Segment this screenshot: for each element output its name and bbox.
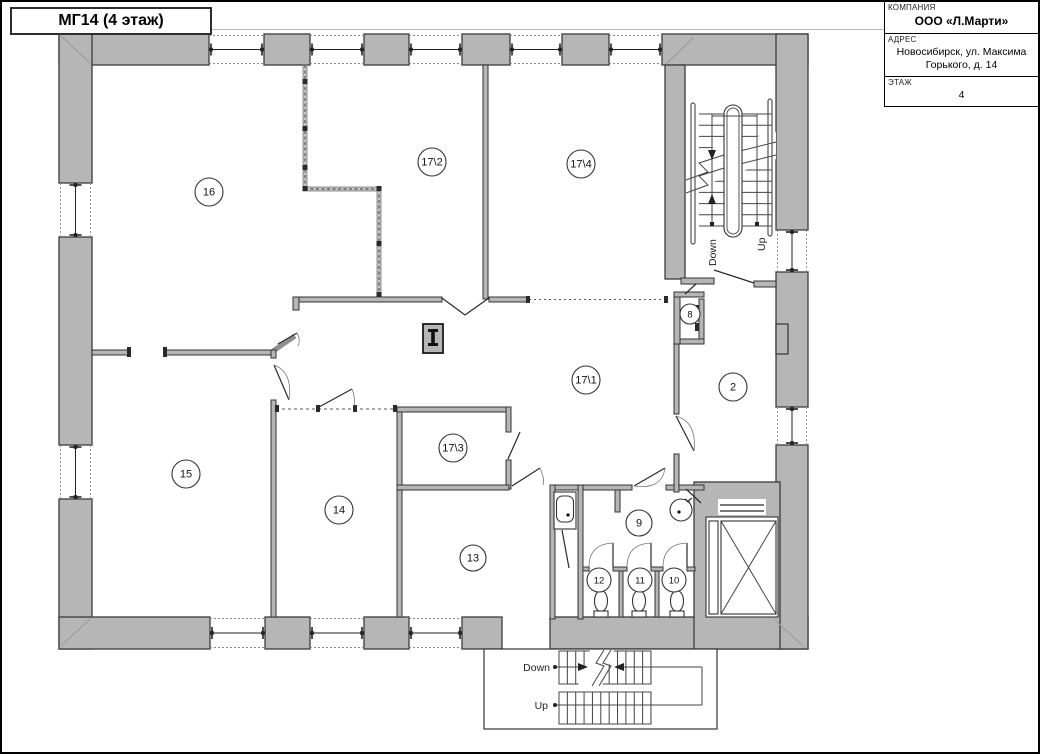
room-label-9: 9 [626,510,652,536]
svg-text:17\4: 17\4 [570,159,591,171]
stair-back-down-label: Down [523,662,550,674]
room8-fixture [695,323,699,331]
window [409,619,462,648]
room-label-14: 14 [325,496,353,524]
stair-main-up-label: Up [756,237,768,251]
room-label-17-4: 17\4 [567,150,595,178]
stair-main-down-label: Down [707,239,719,266]
page-title: МГ14 (4 этаж) [10,7,212,35]
svg-text:14: 14 [333,505,345,517]
svg-text:13: 13 [467,553,479,565]
room-label-8: 8 [680,304,700,324]
sink-round [670,498,692,521]
window [310,36,364,64]
window [609,36,662,64]
window [409,36,462,64]
address-line-1: Новосибирск, ул. Максима [888,46,1035,59]
floor-plan-page: МГ14 (4 этаж) КОМПАНИЯ ООО «Л.Марти» АДР… [0,0,1040,754]
address-value: Новосибирск, ул. Максима Горького, д. 14 [888,44,1035,74]
room-label-17-2: 17\2 [418,148,446,176]
room-label-16: 16 [195,178,223,206]
room-label-17-1: 17\1 [572,366,600,394]
svg-text:15: 15 [180,469,192,481]
title-block-company: КОМПАНИЯ ООО «Л.Марти» [884,2,1038,34]
svg-text:12: 12 [594,576,605,587]
toilet [670,591,684,618]
column-ibeam [423,324,443,353]
toilet [632,591,646,618]
room-label-11: 11 [628,568,652,592]
room-label-2: 2 [719,373,747,401]
elevator [706,499,778,617]
svg-text:17\1: 17\1 [575,375,596,387]
window [510,36,562,64]
sink-square [554,492,576,529]
svg-text:8: 8 [687,310,692,321]
svg-text:17\2: 17\2 [421,157,442,169]
stair-back-up-label: Up [535,700,549,712]
window [61,445,91,499]
stair-shaft-wall [665,65,685,279]
svg-text:9: 9 [636,518,642,530]
window [210,619,265,648]
company-label: КОМПАНИЯ [888,3,1035,12]
room-label-12: 12 [587,568,611,592]
floor-plan-drawing: Down Up Down Up 1617\217\417\117\3281514… [2,2,1040,754]
staircase-back: Down Up [484,649,717,729]
page-title-text: МГ14 (4 этаж) [58,12,163,30]
room-labels: 1617\217\417\117\3281514139121110 [172,148,747,592]
floor-value: 4 [888,87,1035,104]
address-label: АДРЕС [888,35,1035,44]
room-label-13: 13 [460,545,486,571]
window [310,619,364,648]
room-label-15: 15 [172,460,200,488]
svg-text:17\3: 17\3 [442,443,463,455]
svg-text:16: 16 [203,187,215,199]
wall-pilaster [776,324,788,354]
address-line-2: Горького, д. 14 [888,59,1035,72]
floor-label: ЭТАЖ [888,78,1035,87]
room-label-10: 10 [662,568,686,592]
window [778,230,807,272]
room-label-17-3: 17\3 [439,434,467,462]
title-block: КОМПАНИЯ ООО «Л.Марти» АДРЕС Новосибирск… [884,2,1038,107]
svg-text:11: 11 [635,576,645,587]
title-block-floor: ЭТАЖ 4 [884,77,1038,107]
svg-text:10: 10 [669,576,680,587]
window [61,183,91,237]
company-value: ООО «Л.Марти» [888,12,1035,31]
staircase-main: Down Up [686,99,776,266]
title-block-address: АДРЕС Новосибирск, ул. Максима Горького,… [884,34,1038,77]
toilet [594,591,608,618]
window [778,407,807,445]
svg-text:2: 2 [730,382,736,394]
toilets [594,591,684,618]
window [209,36,264,64]
partition-walls [303,65,382,297]
